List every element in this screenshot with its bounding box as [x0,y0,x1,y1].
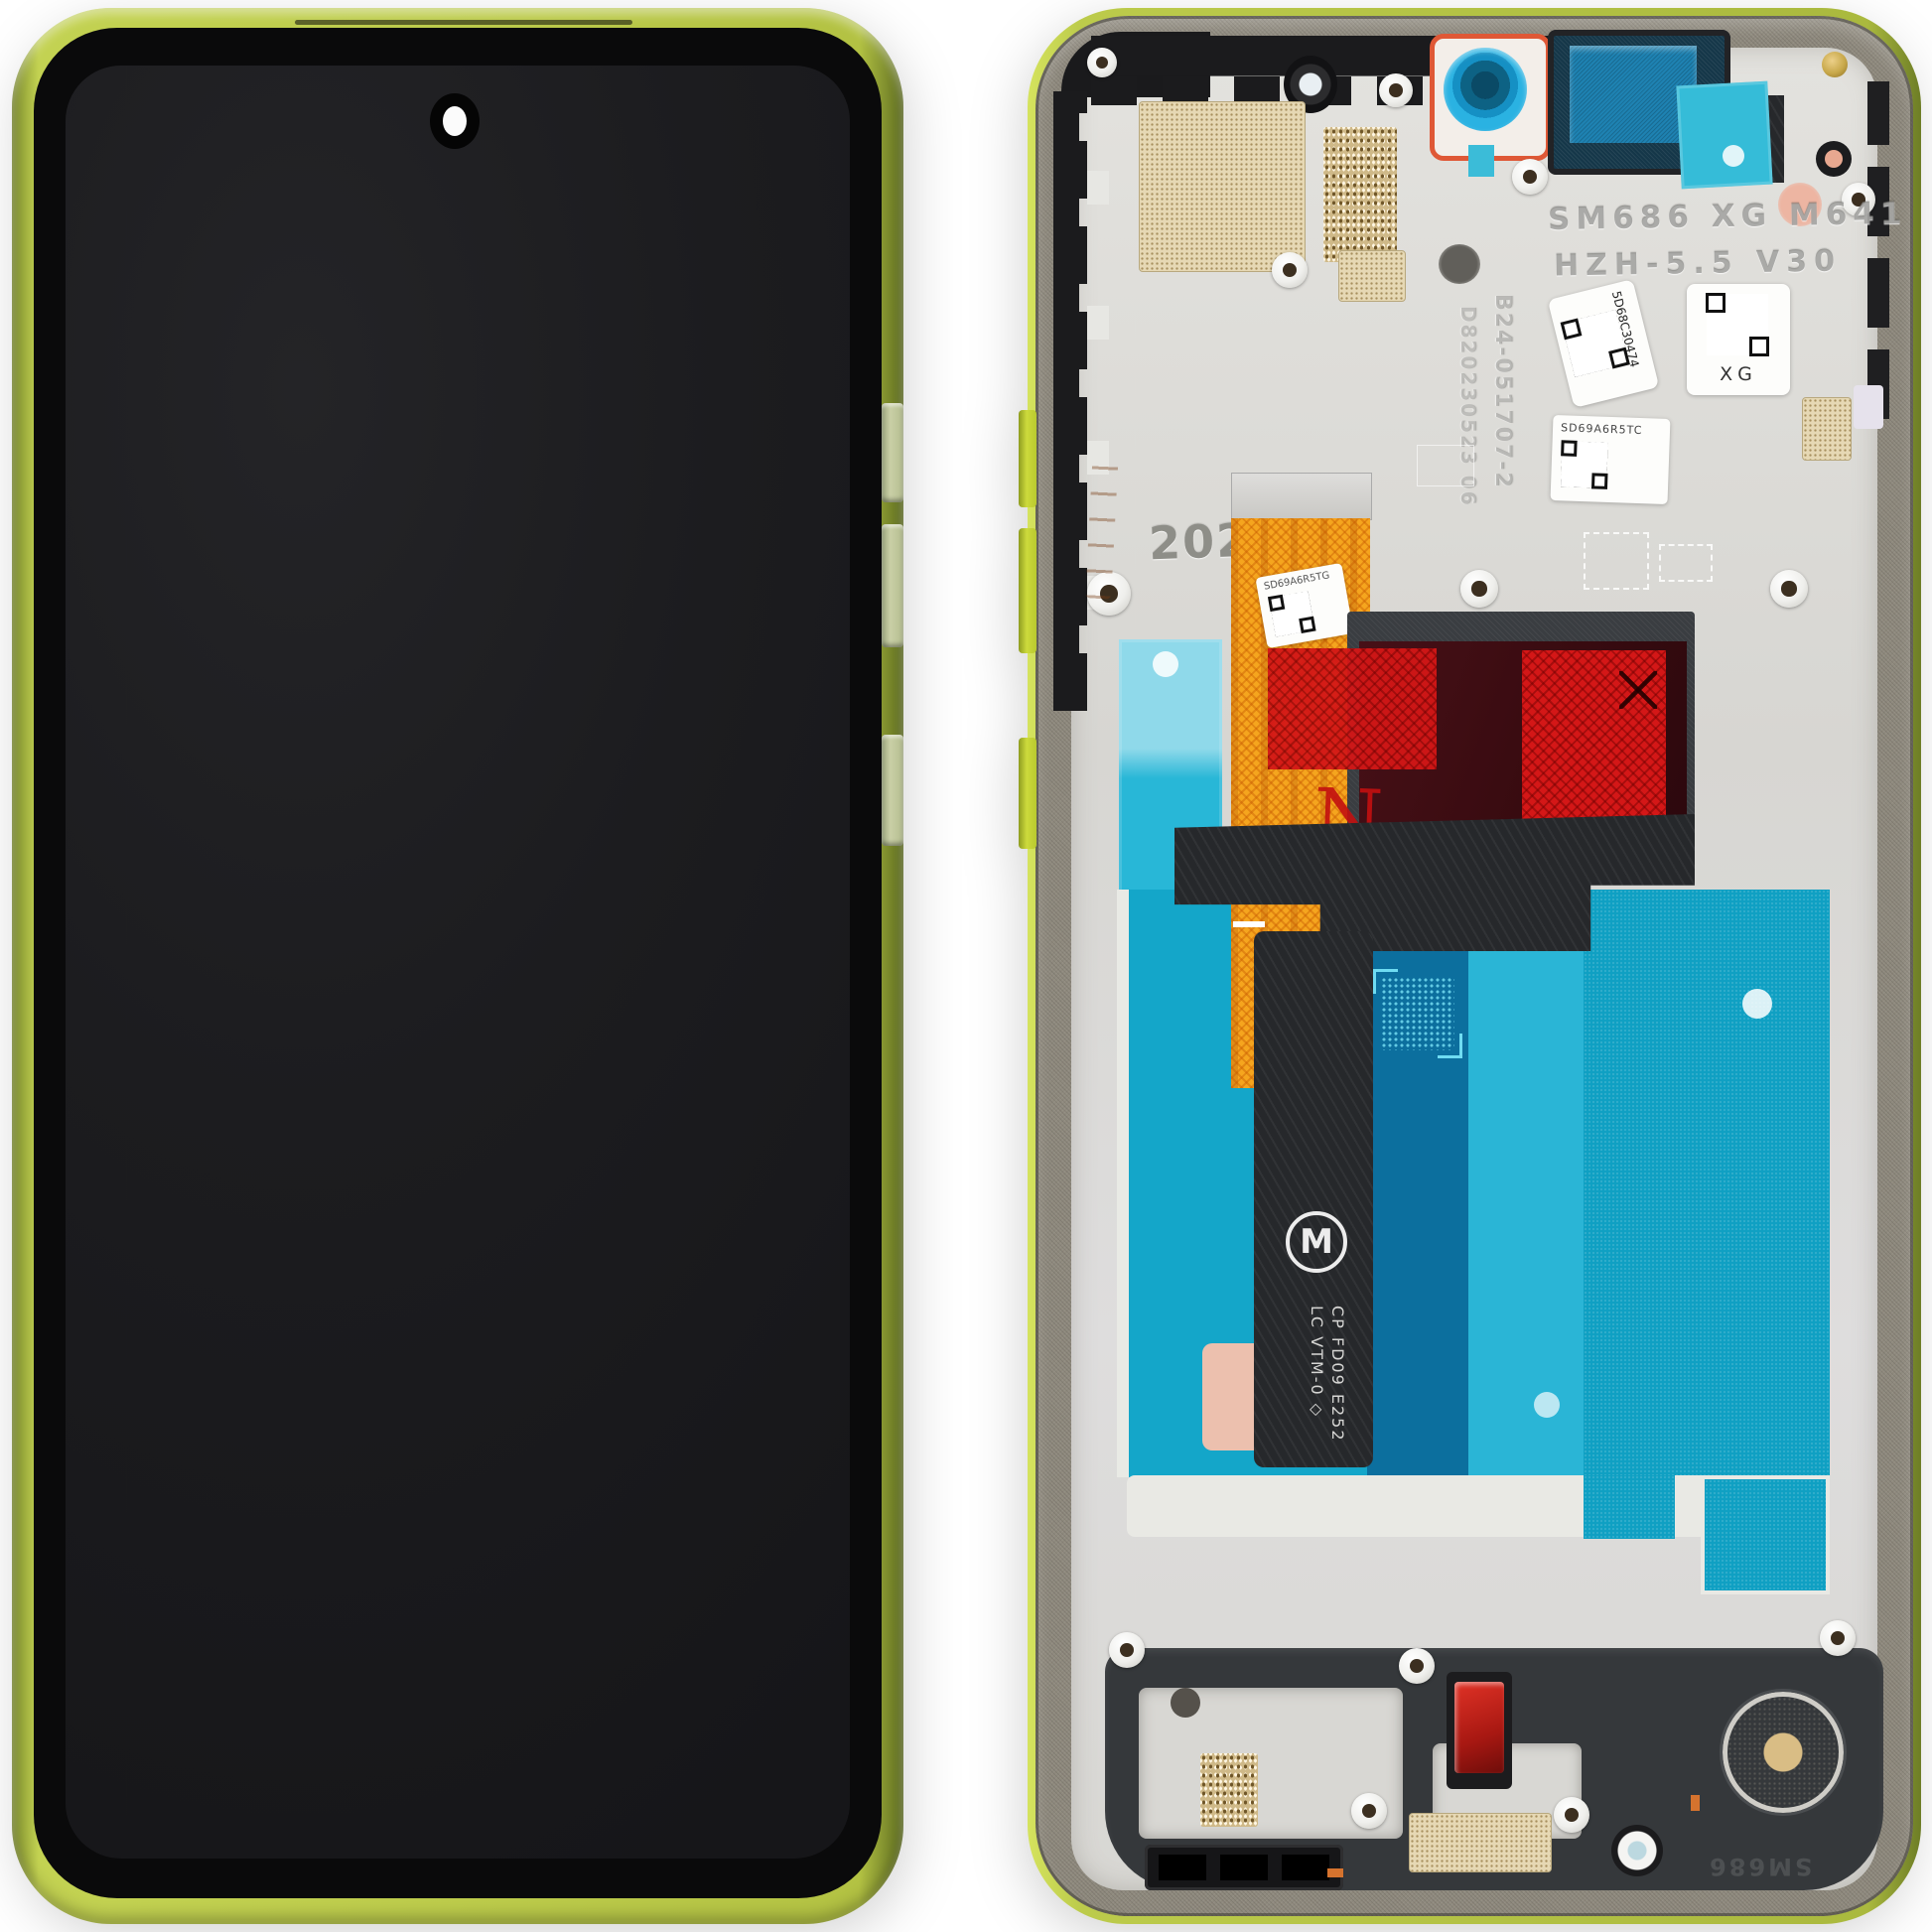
connector-slot-2 [1220,1855,1268,1880]
screw-mid-right [1770,570,1808,608]
embossed-serial-b: B24-051707-2 [1490,294,1515,489]
volume-up-button [882,403,903,502]
screw-bottom-4 [1554,1797,1589,1833]
antenna-gold-mesh-small [1338,250,1406,302]
sensor-pink-center [1825,150,1843,168]
sticker-qr-xg: XG [1687,284,1790,395]
flex-white-tick [1233,921,1265,927]
loudspeaker-mesh [1723,1692,1844,1813]
screw-top-mid [1379,73,1413,107]
antenna-gold-mesh-large [1139,101,1306,272]
qr-code-icon [1707,294,1768,355]
embossed-bottom-model: SM686 [1707,1853,1812,1880]
etched-qr-code-icon [1381,977,1454,1050]
power-button [882,735,903,846]
red-glossy-component [1454,1682,1504,1773]
embossed-model-line1: SM686 XG M641 [1548,196,1908,237]
sticker-qr-flex: SD69A6R5TG [1255,563,1353,648]
x-mark [1619,671,1657,709]
bottom-gold-speckle [1200,1753,1258,1827]
adhesive-outline-2 [1659,544,1713,582]
bottom-dark-dot [1171,1688,1200,1718]
volume-down-button [882,524,903,647]
screw-bottom-3 [1351,1793,1387,1829]
teal-tab-small [1584,1475,1675,1539]
gold-screw [1822,52,1848,77]
smd-component-2 [1691,1795,1700,1811]
qr-code-icon [1561,441,1608,488]
camera-cyan-pull-tab [1468,145,1494,177]
front-screen [66,66,850,1859]
tape-white-dot-left [1153,651,1178,677]
cyan-mid-band [1468,890,1584,1477]
screw-bottom-5 [1820,1620,1856,1656]
screw-upper-left [1272,252,1308,288]
screw-bottom-2 [1399,1648,1435,1684]
bottom-connector-block [1145,1845,1343,1890]
red-tape-left [1268,648,1437,769]
cyan-textured-band [1584,890,1830,1477]
antenna-gold-mesh-right [1802,397,1852,461]
bottom-charcoal-frame: SM686 [1105,1648,1883,1890]
sticker-xg-label: XG [1687,363,1790,385]
flex-connector-silver [1231,473,1372,520]
tape-white-dot-top [1723,145,1744,167]
cyan-white-dot-2 [1534,1392,1560,1418]
earpiece-slit [295,20,632,25]
adhesive-outline-1 [1584,532,1649,590]
embossed-model-line2: HZH-5.5 V30 [1554,243,1843,283]
connector-slot-1 [1159,1855,1206,1880]
flex-print-line2: LC VTM-0 ◇ [1307,1306,1327,1514]
dark-blue-flex-band [1367,890,1468,1477]
left-black-strip [1053,91,1115,711]
phone-front-view [12,8,903,1924]
antenna-gold-speckle [1323,127,1397,262]
bottom-mic-grommet [1611,1825,1663,1876]
sticker-small-text: SD69A6R5TC [1561,421,1643,437]
qr-code-icon [1269,591,1314,636]
punch-hole-camera [443,106,467,136]
screw-bottom-1 [1109,1632,1145,1668]
right-black-strip [1867,81,1889,419]
phone-back-view: SM686 XG M641 HZH-5.5 V30 D820230523 06 … [1028,8,1921,1924]
cyan-white-dot-1 [1742,989,1772,1019]
sticker-qr-small: SD69A6R5TC [1551,415,1671,504]
mic-hole-pad [1439,244,1480,284]
screw-top-left [1087,48,1117,77]
motorola-logo-icon: M [1286,1211,1347,1273]
etched-outline [1417,445,1474,486]
white-foam-pad [1854,385,1883,429]
smd-component-1 [1327,1868,1343,1877]
cyan-tape-piece [1676,81,1772,190]
flex-print-line1: CP FD09 E252 [1327,1306,1348,1514]
screw-mid-center [1460,570,1498,608]
teal-tab-large [1701,1475,1830,1594]
screw-upper-mid [1512,159,1548,195]
connector-slot-3 [1282,1855,1329,1880]
volume-up-button-back [1019,410,1036,507]
flex-print-block: CP FD09 E252 LC VTM-0 ◇ [1305,1306,1348,1514]
camera-blue-gasket [1444,48,1527,131]
volume-down-button-back [1019,528,1036,653]
bottom-gold-mesh-ribbon [1409,1813,1552,1872]
power-button-back [1019,738,1036,849]
